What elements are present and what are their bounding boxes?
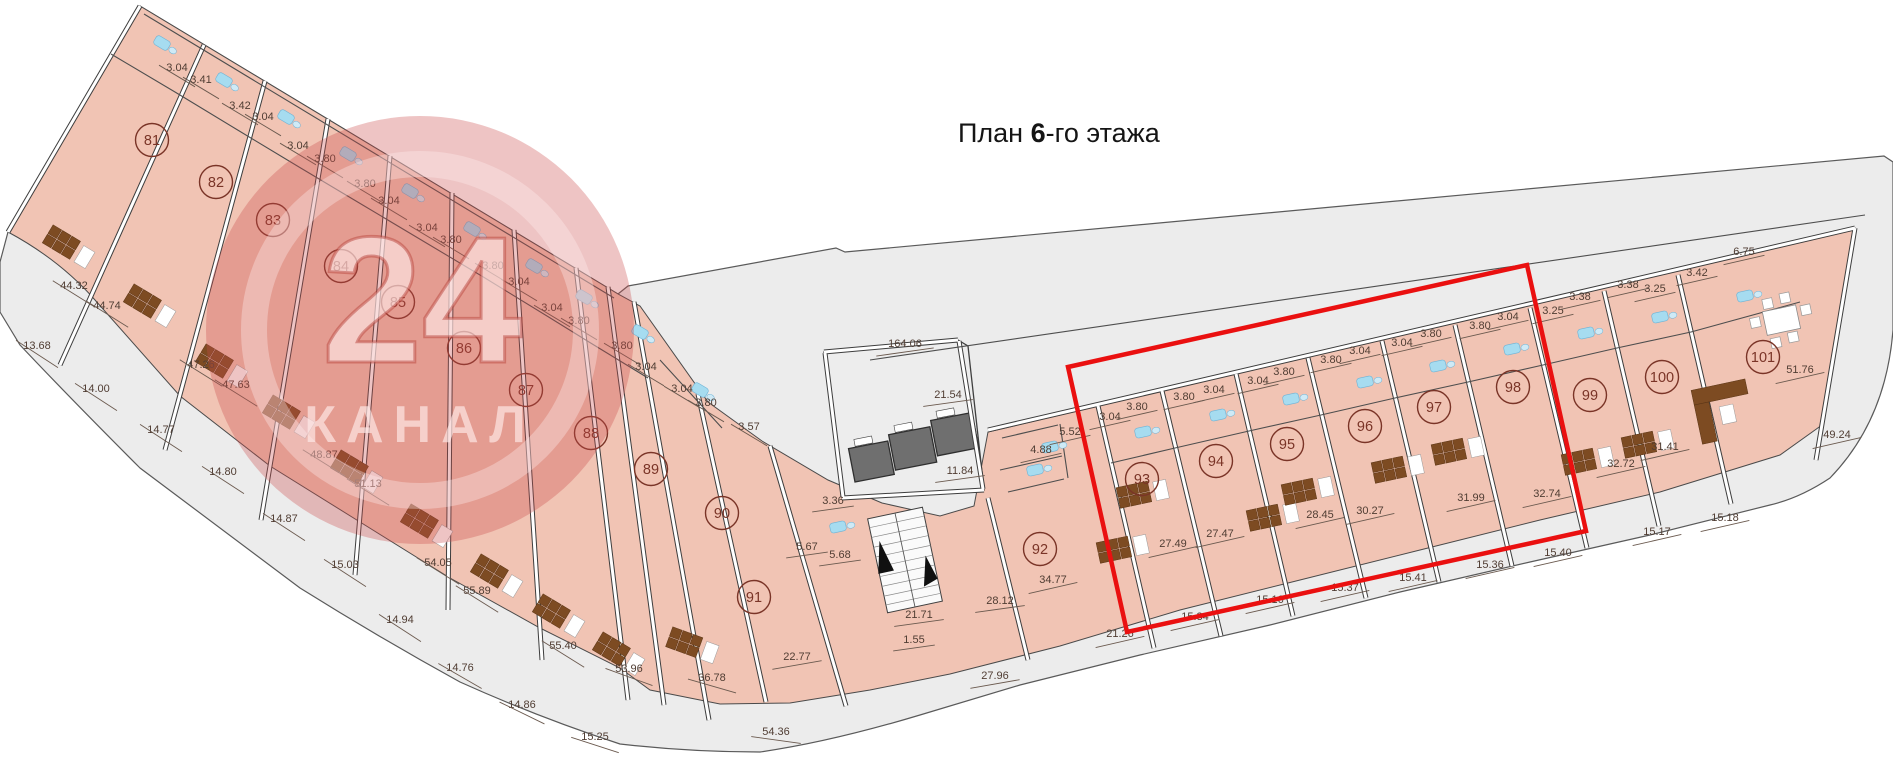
svg-text:13.68: 13.68 xyxy=(23,340,51,352)
svg-text:3.80: 3.80 xyxy=(1126,401,1147,413)
svg-text:51.76: 51.76 xyxy=(1786,364,1814,376)
svg-text:3.04: 3.04 xyxy=(1391,337,1412,349)
svg-text:97: 97 xyxy=(1426,400,1442,416)
svg-text:3.80: 3.80 xyxy=(695,397,716,409)
svg-text:11.84: 11.84 xyxy=(947,465,974,477)
page-title: План 6-го этажа xyxy=(958,118,1160,149)
svg-text:3.42: 3.42 xyxy=(229,100,250,112)
page-title-prefix: План xyxy=(958,118,1031,148)
watermark: 24 КАНАЛ xyxy=(206,116,634,544)
svg-text:98: 98 xyxy=(1505,380,1521,396)
svg-text:99: 99 xyxy=(1582,388,1598,404)
svg-text:90: 90 xyxy=(714,506,730,522)
svg-text:22.77: 22.77 xyxy=(783,651,811,663)
svg-text:3.41: 3.41 xyxy=(190,74,211,86)
svg-text:3.36: 3.36 xyxy=(822,495,843,507)
svg-text:36.78: 36.78 xyxy=(698,672,726,684)
svg-text:3.04: 3.04 xyxy=(1203,384,1224,396)
svg-text:94: 94 xyxy=(1208,454,1224,470)
svg-text:31.99: 31.99 xyxy=(1457,492,1485,504)
svg-text:3.80: 3.80 xyxy=(1469,320,1490,332)
svg-text:14.87: 14.87 xyxy=(270,513,298,525)
svg-text:3.04: 3.04 xyxy=(1497,311,1518,323)
svg-text:3.80: 3.80 xyxy=(1273,366,1294,378)
svg-text:101: 101 xyxy=(1751,350,1775,366)
svg-text:21.71: 21.71 xyxy=(905,609,933,621)
svg-text:34.77: 34.77 xyxy=(1039,574,1067,586)
svg-text:15.40: 15.40 xyxy=(1544,547,1572,559)
svg-text:3.80: 3.80 xyxy=(1173,391,1194,403)
svg-text:96: 96 xyxy=(1357,419,1373,435)
svg-text:3.04: 3.04 xyxy=(1099,411,1120,423)
svg-text:14.86: 14.86 xyxy=(508,699,536,711)
svg-text:14.76: 14.76 xyxy=(446,662,474,674)
svg-text:3.38: 3.38 xyxy=(1617,279,1638,291)
svg-text:95: 95 xyxy=(1279,437,1295,453)
svg-text:15.25: 15.25 xyxy=(581,731,609,743)
svg-text:14.80: 14.80 xyxy=(209,466,237,478)
page-title-suffix: -го этажа xyxy=(1046,118,1160,148)
svg-text:15.03: 15.03 xyxy=(331,559,359,571)
svg-text:91: 91 xyxy=(746,590,762,606)
svg-text:3.80: 3.80 xyxy=(1320,354,1341,366)
svg-text:28.45: 28.45 xyxy=(1306,509,1334,521)
svg-text:89: 89 xyxy=(643,462,659,478)
svg-text:14.00: 14.00 xyxy=(82,383,110,395)
svg-text:3.80: 3.80 xyxy=(1420,328,1441,340)
svg-text:15.41: 15.41 xyxy=(1399,572,1427,584)
svg-text:3.57: 3.57 xyxy=(738,421,759,433)
svg-text:14.94: 14.94 xyxy=(386,614,414,626)
svg-text:3.38: 3.38 xyxy=(1569,291,1590,303)
svg-text:3.04: 3.04 xyxy=(1349,345,1370,357)
elevator-shaft xyxy=(849,441,895,482)
svg-text:28.12: 28.12 xyxy=(986,595,1014,607)
svg-text:15.36: 15.36 xyxy=(1476,559,1504,571)
svg-text:55.40: 55.40 xyxy=(549,640,577,652)
svg-text:54.36: 54.36 xyxy=(762,726,790,738)
svg-text:4.88: 4.88 xyxy=(1030,444,1051,456)
svg-text:3.04: 3.04 xyxy=(671,383,692,395)
svg-text:81: 81 xyxy=(144,133,160,149)
svg-text:15.17: 15.17 xyxy=(1643,526,1671,538)
page-title-floor-number: 6 xyxy=(1031,118,1046,148)
svg-text:49.24: 49.24 xyxy=(1823,429,1851,441)
svg-text:3.42: 3.42 xyxy=(1686,267,1707,279)
svg-text:44.74: 44.74 xyxy=(93,300,121,312)
svg-text:93: 93 xyxy=(1134,472,1150,488)
svg-text:5.67: 5.67 xyxy=(796,541,817,553)
svg-text:27.49: 27.49 xyxy=(1159,538,1187,550)
svg-text:5.68: 5.68 xyxy=(829,549,850,561)
svg-text:30.27: 30.27 xyxy=(1356,505,1384,517)
svg-text:92: 92 xyxy=(1032,542,1048,558)
svg-text:6.75: 6.75 xyxy=(1733,246,1754,258)
svg-text:15.18: 15.18 xyxy=(1711,512,1739,524)
svg-text:32.72: 32.72 xyxy=(1607,458,1635,470)
svg-text:55.89: 55.89 xyxy=(463,585,491,597)
svg-text:100: 100 xyxy=(1650,370,1674,386)
svg-text:44.32: 44.32 xyxy=(60,280,88,292)
svg-text:27.96: 27.96 xyxy=(981,670,1009,682)
svg-text:3.04: 3.04 xyxy=(1247,375,1268,387)
svg-text:3.04: 3.04 xyxy=(252,111,273,123)
svg-text:1.55: 1.55 xyxy=(903,634,924,646)
svg-text:3.25: 3.25 xyxy=(1644,283,1665,295)
svg-text:3.04: 3.04 xyxy=(635,361,656,373)
svg-text:32.74: 32.74 xyxy=(1533,488,1561,500)
svg-text:164.06: 164.06 xyxy=(888,338,922,350)
svg-text:82: 82 xyxy=(208,175,224,191)
floor-plan-drawing: 3.043.413.423.043.043.803.803.043.043.80… xyxy=(0,0,1893,766)
svg-text:31.41: 31.41 xyxy=(1651,441,1679,453)
floor-plan-page: 3.043.413.423.043.043.803.803.043.043.80… xyxy=(0,0,1893,766)
svg-text:21.54: 21.54 xyxy=(934,389,962,401)
svg-text:14.77: 14.77 xyxy=(147,424,175,436)
elevator-shaft xyxy=(889,427,937,470)
watermark-name: КАНАЛ xyxy=(304,396,536,454)
svg-text:3.25: 3.25 xyxy=(1542,305,1563,317)
svg-text:3.04: 3.04 xyxy=(166,62,187,74)
svg-text:5.52: 5.52 xyxy=(1059,426,1080,438)
svg-text:54.05: 54.05 xyxy=(424,557,452,569)
watermark-number: 24 xyxy=(322,200,522,401)
svg-text:27.47: 27.47 xyxy=(1206,528,1234,540)
